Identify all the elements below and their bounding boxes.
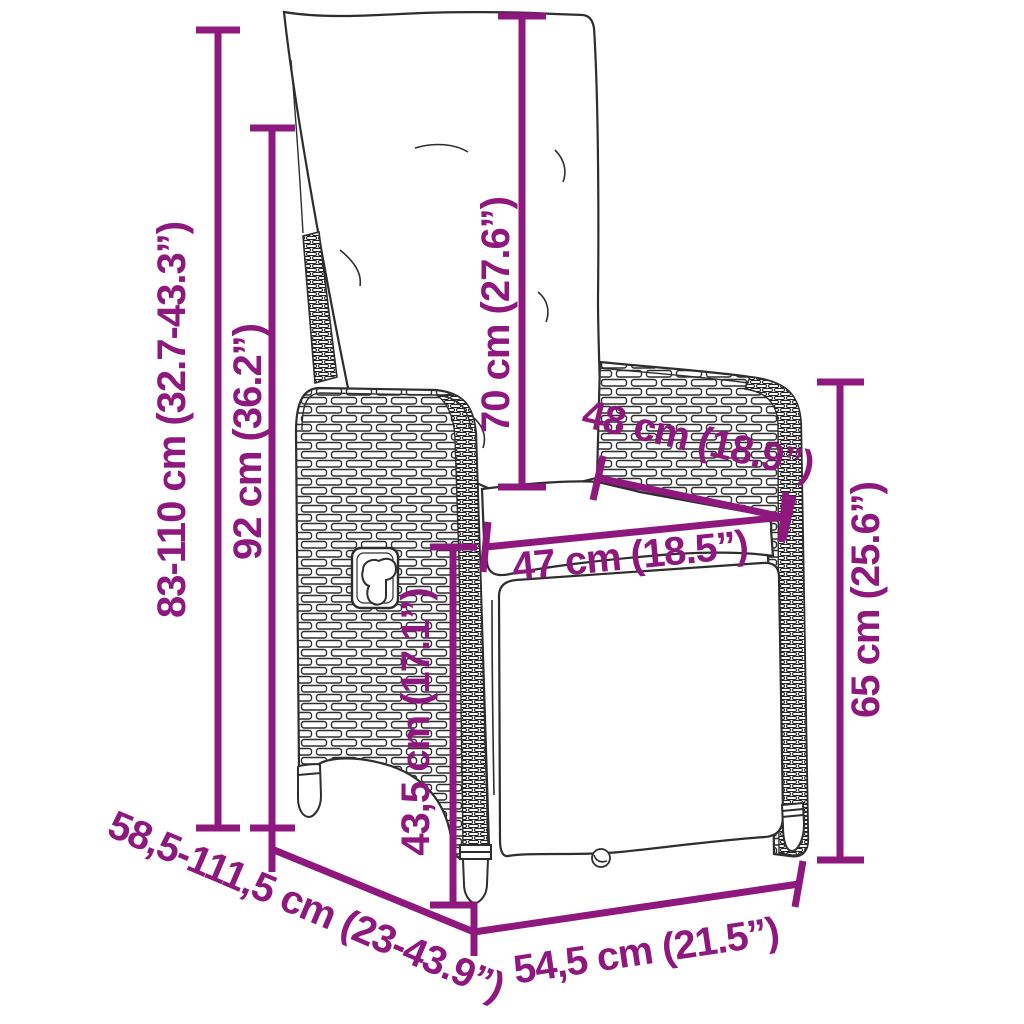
seat-side-line <box>492 600 494 795</box>
dim-label-overall-height: 83-110 cm (32.7-43.3”) <box>152 222 192 618</box>
dim-label-seat-height: 43,5 cm (17.1”) <box>396 588 436 855</box>
seat-front-panel <box>492 563 783 867</box>
left-side-panel <box>296 388 489 859</box>
dim-label-backrest-height: 92 cm (36.2”) <box>228 324 268 560</box>
dim-label-back-cushion-height: 70 cm (27.6”) <box>476 197 516 433</box>
dim-label-armrest-height: 65 cm (25.6”) <box>846 482 886 718</box>
front-left-foot <box>463 859 488 903</box>
rear-left-foot <box>298 764 321 817</box>
dimension-diagram: 83-110 cm (32.7-43.3”) 92 cm (36.2”) 70 … <box>0 0 1024 1024</box>
